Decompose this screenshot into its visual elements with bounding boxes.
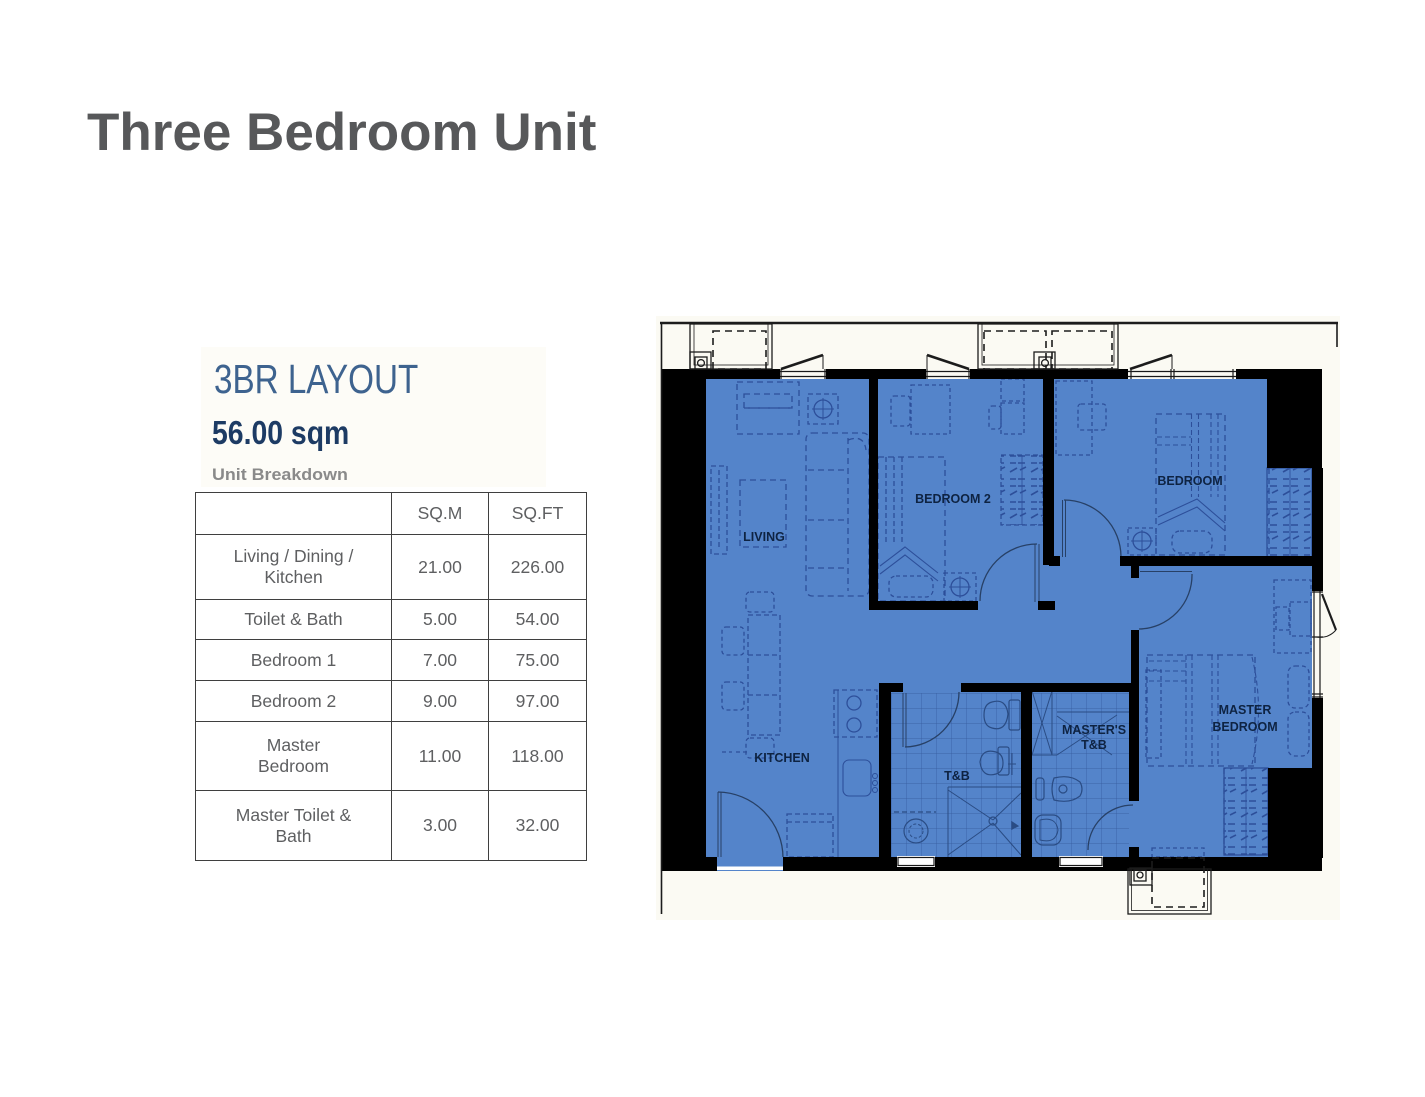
- svg-text:MASTER'S: MASTER'S: [1062, 723, 1126, 737]
- svg-text:BEDROOM 2: BEDROOM 2: [915, 492, 991, 506]
- svg-text:KITCHEN: KITCHEN: [754, 751, 810, 765]
- svg-text:MASTER: MASTER: [1219, 703, 1272, 717]
- svg-text:LIVING: LIVING: [743, 530, 785, 544]
- svg-text:T&B: T&B: [944, 769, 970, 783]
- svg-text:T&B: T&B: [1081, 738, 1107, 752]
- svg-text:BEDROOM: BEDROOM: [1157, 474, 1222, 488]
- svg-text:BEDROOM: BEDROOM: [1212, 720, 1277, 734]
